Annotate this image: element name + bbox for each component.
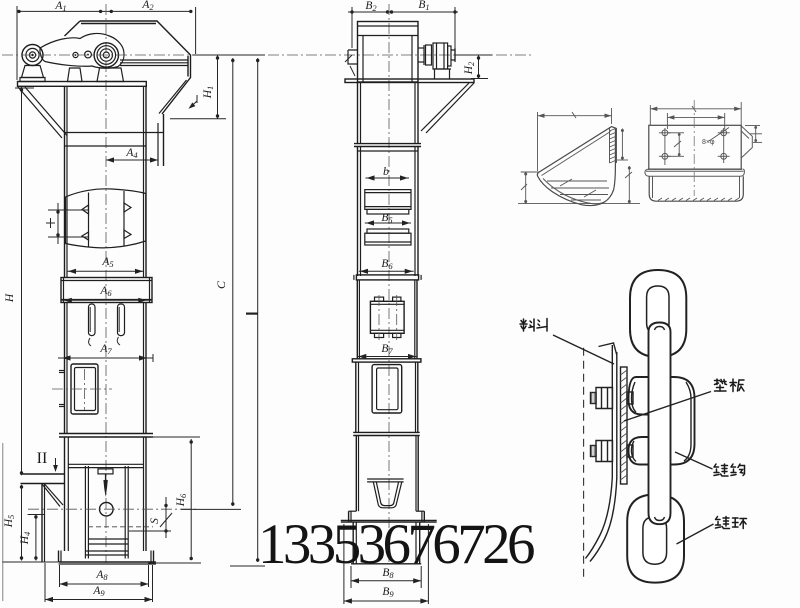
- svg-text:8×φ: 8×φ: [702, 139, 715, 146]
- svg-text:A2: A2: [141, 0, 154, 12]
- svg-text:b: b: [383, 164, 389, 178]
- svg-text:II: II: [37, 450, 48, 467]
- svg-text:B1: B1: [418, 0, 429, 12]
- svg-text:S: S: [149, 518, 161, 524]
- svg-text:H: H: [4, 293, 16, 303]
- svg-text:C: C: [214, 280, 228, 289]
- svg-text:13353676726: 13353676726: [258, 513, 534, 576]
